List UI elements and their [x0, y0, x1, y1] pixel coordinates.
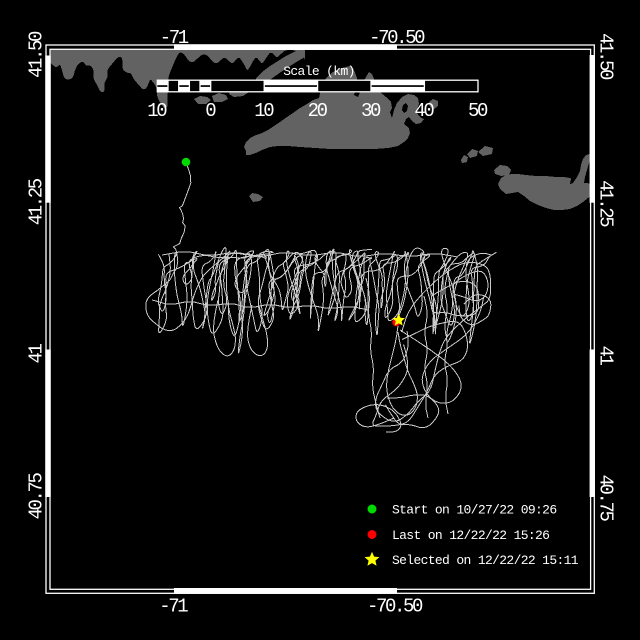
svg-text:Last on 12/22/22 15:26: Last on 12/22/22 15:26	[392, 528, 549, 543]
svg-text:Start on 10/27/22 09:26: Start on 10/27/22 09:26	[392, 503, 556, 518]
svg-text:-71: -71	[160, 27, 189, 49]
svg-text:10: 10	[147, 100, 167, 122]
svg-text:-71: -71	[159, 596, 188, 618]
svg-text:30: 30	[361, 100, 381, 122]
svg-text:40.75: 40.75	[26, 473, 48, 520]
svg-text:40: 40	[414, 100, 434, 122]
svg-text:50: 50	[468, 100, 488, 122]
svg-text:41: 41	[595, 345, 617, 365]
svg-text:41.50: 41.50	[595, 33, 617, 80]
svg-text:10: 10	[254, 100, 274, 122]
svg-text:41: 41	[26, 344, 48, 364]
svg-text:41.25: 41.25	[595, 180, 617, 227]
svg-text:41.50: 41.50	[26, 31, 48, 78]
svg-text:Selected on 12/22/22 15:11: Selected on 12/22/22 15:11	[392, 553, 579, 568]
svg-text:Scale (km): Scale (km)	[283, 64, 355, 79]
svg-text:41.25: 41.25	[26, 178, 48, 225]
svg-text:-70.50: -70.50	[369, 27, 425, 49]
svg-text:40.75: 40.75	[595, 474, 617, 521]
svg-text:20: 20	[308, 100, 328, 122]
svg-text:-70.50: -70.50	[367, 596, 423, 618]
